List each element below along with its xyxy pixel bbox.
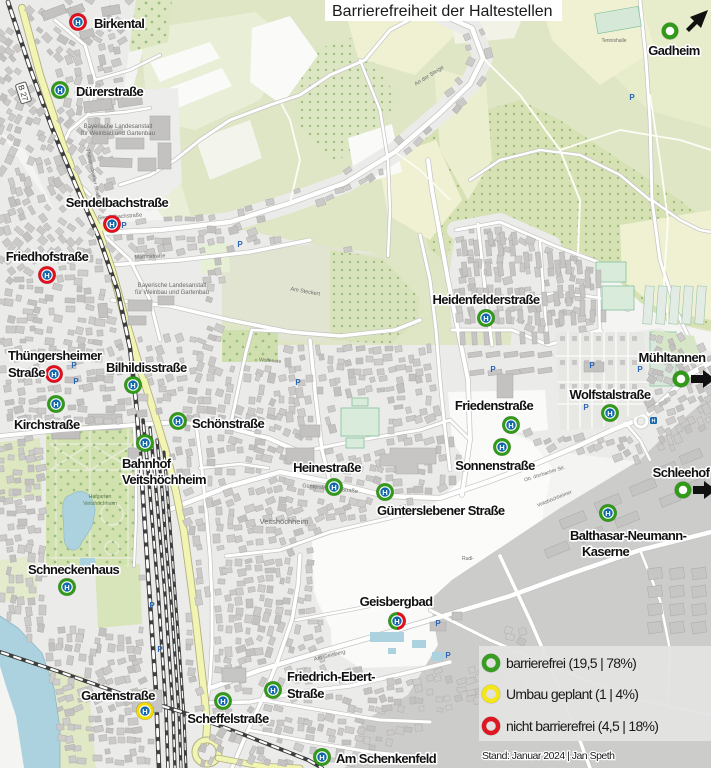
svg-text:H: H [142,439,147,448]
svg-text:Schneckenhaus: Schneckenhaus [28,562,120,577]
svg-text:barrierefrei (19,5 | 78%): barrierefrei (19,5 | 78%) [506,655,636,671]
svg-text:P: P [445,651,451,660]
svg-text:Günterslebener Straße: Günterslebener Straße [377,503,505,518]
svg-text:H: H [499,443,504,452]
svg-text:Thüngersheimer: Thüngersheimer [8,348,102,363]
svg-text:P: P [435,619,441,628]
svg-text:Balthasar-Neumann-: Balthasar-Neumann- [570,528,687,543]
svg-text:Dürerstraße: Dürerstraße [76,84,143,99]
svg-text:P: P [149,601,155,610]
svg-text:H: H [508,421,513,430]
svg-text:für Weinbau und Gartenbau: für Weinbau und Gartenbau [81,131,155,137]
svg-text:Bayerische Landesanstalt: Bayerische Landesanstalt [84,124,153,130]
svg-text:H: H [75,18,80,27]
svg-text:H: H [483,314,488,323]
svg-text:P: P [295,378,301,387]
svg-text:Friedhofstraße: Friedhofstraße [6,249,89,264]
svg-text:P: P [73,377,79,386]
svg-text:Scheffelstraße: Scheffelstraße [187,711,269,726]
svg-text:Friedenstraße: Friedenstraße [455,398,534,413]
svg-text:H: H [175,417,180,426]
svg-text:H: H [270,686,275,695]
svg-text:Kirchstraße: Kirchstraße [14,417,80,432]
svg-text:Gartenstraße: Gartenstraße [81,688,155,703]
svg-text:Am Schenkenfeld: Am Schenkenfeld [336,751,437,766]
svg-text:H: H [220,697,225,706]
svg-text:Hofgarten: Hofgarten [89,494,112,500]
svg-text:Geisbergbad: Geisbergbad [360,594,434,609]
svg-text:P: P [121,221,127,230]
svg-text:P: P [583,403,589,412]
svg-text:H: H [57,86,62,95]
svg-text:Veitshöchheim: Veitshöchheim [122,472,206,487]
svg-text:Rudi-: Rudi- [462,556,474,562]
svg-text:H: H [382,488,387,497]
svg-text:Wolfstalstraße: Wolfstalstraße [570,387,651,402]
svg-text:für Weinbau und Gartenbau: für Weinbau und Gartenbau [135,290,209,296]
svg-text:Schönstraße: Schönstraße [192,416,265,431]
svg-text:H: H [607,409,612,418]
svg-text:H: H [652,419,656,425]
svg-text:H: H [51,370,56,379]
svg-text:H: H [331,483,336,492]
svg-text:P: P [589,361,595,370]
svg-text:H: H [44,271,49,280]
svg-text:Veitshöchheim: Veitshöchheim [260,517,309,526]
svg-text:Heinestraße: Heinestraße [293,460,361,475]
svg-text:Bahnhof: Bahnhof [122,456,172,471]
svg-text:Sendelbachstraße: Sendelbachstraße [66,195,169,210]
svg-text:H: H [319,753,324,762]
svg-text:Tennishalle: Tennishalle [601,38,626,44]
svg-text:Umbau geplant (1 | 4%): Umbau geplant (1 | 4%) [506,686,638,702]
svg-text:P: P [629,93,635,102]
svg-text:P: P [157,645,163,654]
svg-text:Bayerische Landesanstalt: Bayerische Landesanstalt [138,283,207,289]
svg-text:Veitshöchheim: Veitshöchheim [83,501,117,507]
svg-text:H: H [64,583,69,592]
svg-text:Barrierefreiheit der Haltestel: Barrierefreiheit der Haltestellen [332,3,553,20]
svg-text:P: P [637,365,643,374]
svg-text:Kaserne: Kaserne [582,544,629,559]
svg-text:H: H [142,707,147,716]
svg-text:nicht barrierefrei (4,5 | 18%): nicht barrierefrei (4,5 | 18%) [506,718,658,734]
svg-text:P: P [490,365,496,374]
svg-text:H: H [605,509,610,518]
svg-text:H: H [53,400,58,409]
svg-text:Heidenfelderstraße: Heidenfelderstraße [433,292,540,307]
svg-text:H: H [109,220,114,229]
svg-text:Mühltannen: Mühltannen [639,350,707,365]
svg-text:Bilhildisstraße: Bilhildisstraße [106,360,187,375]
svg-text:Friedrich-Ebert-: Friedrich-Ebert- [287,669,375,684]
svg-text:H: H [130,381,135,390]
svg-text:Stand: Januar 2024 | Jan Speth: Stand: Januar 2024 | Jan Speth [482,750,615,762]
svg-text:Birkental: Birkental [94,16,144,31]
svg-text:P: P [237,240,243,249]
svg-text:Sonnenstraße: Sonnenstraße [455,458,535,473]
svg-text:Straße: Straße [287,686,324,701]
svg-text:H: H [394,617,399,626]
svg-text:Schleehof: Schleehof [653,465,711,480]
svg-text:Straße: Straße [8,365,45,380]
svg-text:Gadheim: Gadheim [648,43,699,58]
